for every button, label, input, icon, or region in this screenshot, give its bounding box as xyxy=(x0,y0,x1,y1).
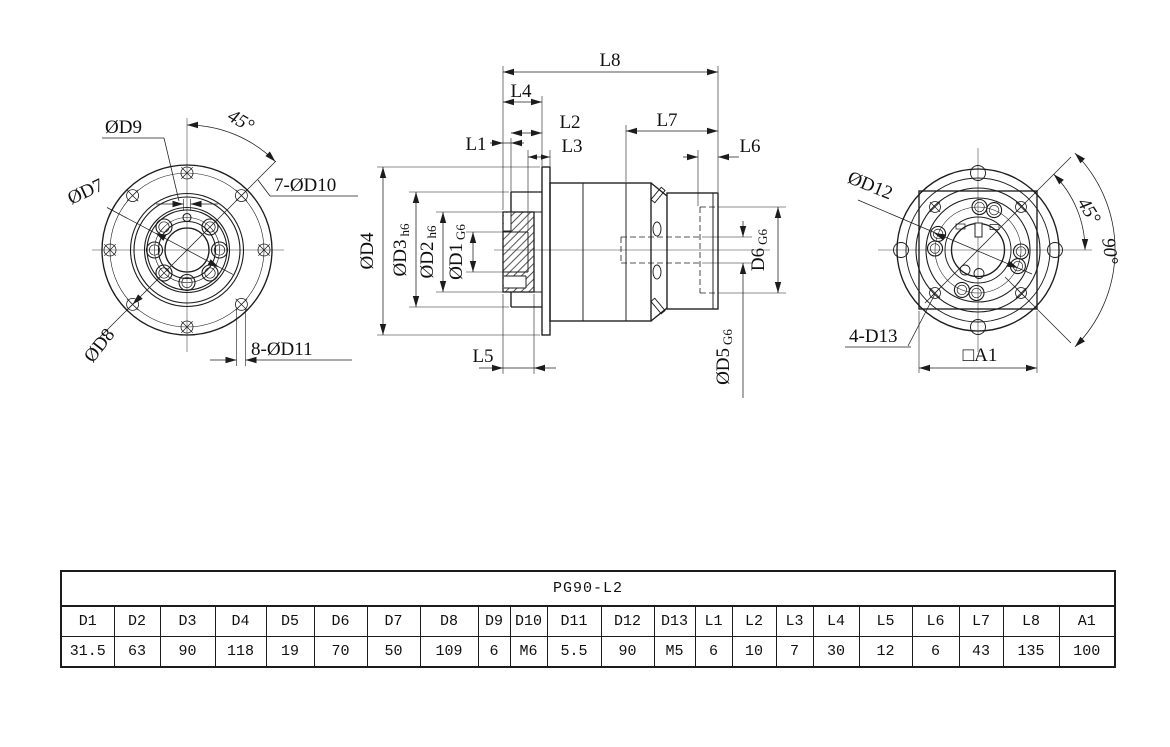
table-header-cell: D5 xyxy=(266,606,314,637)
table-value-cell: M5 xyxy=(654,637,695,668)
table-header-cell: L7 xyxy=(959,606,1003,637)
dim-label-d9: ØD9 xyxy=(105,117,142,138)
table-value-cell: 109 xyxy=(420,637,478,668)
table-header-cell: D2 xyxy=(114,606,160,637)
table-header-cell: D7 xyxy=(367,606,420,637)
table-value-cell: M6 xyxy=(510,637,547,668)
table-header-cell: L2 xyxy=(732,606,776,637)
table-value-cell: 10 xyxy=(732,637,776,668)
dim-label-l3: L3 xyxy=(561,136,582,157)
dim-label-rear-90: 90° xyxy=(1097,237,1122,267)
dim-label-d6: D6G6 xyxy=(748,228,770,271)
front-dim-d11: 8-ØD11 xyxy=(210,309,352,366)
drawing-page: { "front_view": { "labels": { "d9": "ØD9… xyxy=(0,0,1170,747)
table-header-cell: L1 xyxy=(695,606,732,637)
table-header-cell: D13 xyxy=(654,606,695,637)
dim-label-d1: ØD1G6 xyxy=(446,224,468,280)
table-header-cell: D9 xyxy=(478,606,510,637)
table-value-cell: 90 xyxy=(160,637,215,668)
dim-label-d10: 7-ØD10 xyxy=(274,175,336,196)
dim-label-d3: ØD3h6 xyxy=(390,223,412,276)
table-header-cell: L3 xyxy=(776,606,813,637)
dim-label-l7: L7 xyxy=(656,110,677,131)
table-value-cell: 31.5 xyxy=(61,637,114,668)
table-header-cell: D3 xyxy=(160,606,215,637)
table-header-cell: A1 xyxy=(1059,606,1115,637)
table-value-cell: 70 xyxy=(314,637,367,668)
dim-label-l1: L1 xyxy=(465,134,486,155)
section-labels: L8 L4 L1 L2 L3 L7 L6 L5 ØD4 ØD3h6 ØD2h6 … xyxy=(357,50,770,385)
dimension-table-grid: PG90-L2D1D2D3D4D5D6D7D8D9D10D11D12D13L1L… xyxy=(60,570,1116,668)
front-dim-d9: ØD9 xyxy=(102,117,218,211)
table-value-cell: 12 xyxy=(859,637,912,668)
front-view: ØD9 45° ØD8 ØD7 7-ØD10 xyxy=(64,105,358,366)
dim-label-l2: L2 xyxy=(559,112,580,133)
table-header-cell: L6 xyxy=(912,606,959,637)
front-dim-45: 45° xyxy=(187,105,275,161)
table-value-cell: 19 xyxy=(266,637,314,668)
section-extension-lines xyxy=(377,66,786,374)
dim-label-l4: L4 xyxy=(510,81,532,102)
front-centerlines xyxy=(92,118,284,352)
table-value-cell: 135 xyxy=(1003,637,1059,668)
dim-label-l6: L6 xyxy=(739,136,760,157)
front-dim-d10: 7-ØD10 xyxy=(258,175,358,196)
table-header-cell: L4 xyxy=(813,606,859,637)
dim-label-a1: □A1 xyxy=(963,345,998,366)
table-value-cell: 6 xyxy=(478,637,510,668)
dim-label-d7: ØD7 xyxy=(64,175,106,210)
table-header-cell: D10 xyxy=(510,606,547,637)
dimension-table: PG90-L2D1D2D3D4D5D6D7D8D9D10D11D12D13L1L… xyxy=(60,570,1116,668)
dim-label-d2: ØD2h6 xyxy=(417,225,439,278)
table-value-cell: 63 xyxy=(114,637,160,668)
dim-label-d11: 8-ØD11 xyxy=(251,339,313,360)
table-header-cell: D12 xyxy=(601,606,654,637)
table-value-cell: 7 xyxy=(776,637,813,668)
dim-label-d13: 4-D13 xyxy=(849,326,898,347)
table-value-cell: 118 xyxy=(215,637,266,668)
table-value-cell: 100 xyxy=(1059,637,1115,668)
section-body xyxy=(503,167,718,335)
section-view: L8 L4 L1 L2 L3 L7 L6 L5 ØD4 ØD3h6 ØD2h6 … xyxy=(357,50,786,398)
table-header-cell: D4 xyxy=(215,606,266,637)
table-value-cell: 90 xyxy=(601,637,654,668)
table-title: PG90-L2 xyxy=(61,571,1115,606)
table-header-cell: L5 xyxy=(859,606,912,637)
rear-neg45-diagonal xyxy=(1005,277,1071,343)
table-header-cell: L8 xyxy=(1003,606,1059,637)
table-header-cell: D1 xyxy=(61,606,114,637)
dim-label-l8: L8 xyxy=(599,50,620,71)
dim-label-d5: ØD5G6 xyxy=(713,329,735,385)
table-value-cell: 6 xyxy=(912,637,959,668)
rear-view: ØD12 45° 90° 4-D13 □A1 xyxy=(845,148,1122,373)
dim-label-d8: ØD8 xyxy=(80,325,119,367)
rear-dim-d13: 4-D13 xyxy=(845,294,935,347)
dim-label-d4: ØD4 xyxy=(357,232,378,269)
table-value-cell: 50 xyxy=(367,637,420,668)
dim-label-l5: L5 xyxy=(472,346,493,367)
table-header-cell: D6 xyxy=(314,606,367,637)
front-dim-d8: ØD8 xyxy=(80,161,276,367)
table-value-cell: 5.5 xyxy=(547,637,601,668)
table-value-cell: 30 xyxy=(813,637,859,668)
table-header-cell: D11 xyxy=(547,606,601,637)
table-value-cell: 6 xyxy=(695,637,732,668)
dim-label-d12: ØD12 xyxy=(845,167,896,204)
table-value-cell: 43 xyxy=(959,637,1003,668)
dim-label-rear-45: 45° xyxy=(1073,194,1105,228)
rear-45-diagonal xyxy=(925,157,1071,303)
table-header-cell: D8 xyxy=(420,606,478,637)
